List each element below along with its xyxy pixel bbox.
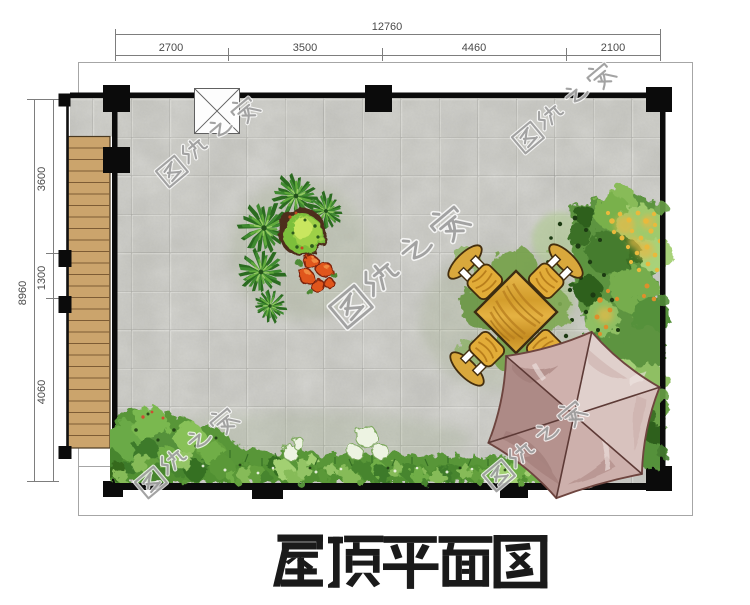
svg-text:12760: 12760 — [372, 21, 403, 33]
svg-text:4460: 4460 — [462, 42, 486, 54]
svg-text:8960: 8960 — [17, 281, 29, 305]
svg-text:2100: 2100 — [601, 42, 625, 54]
svg-text:1300: 1300 — [36, 266, 48, 290]
svg-text:3500: 3500 — [293, 42, 317, 54]
svg-text:2700: 2700 — [159, 42, 183, 54]
svg-text:4060: 4060 — [36, 380, 48, 404]
svg-text:3600: 3600 — [36, 167, 48, 191]
